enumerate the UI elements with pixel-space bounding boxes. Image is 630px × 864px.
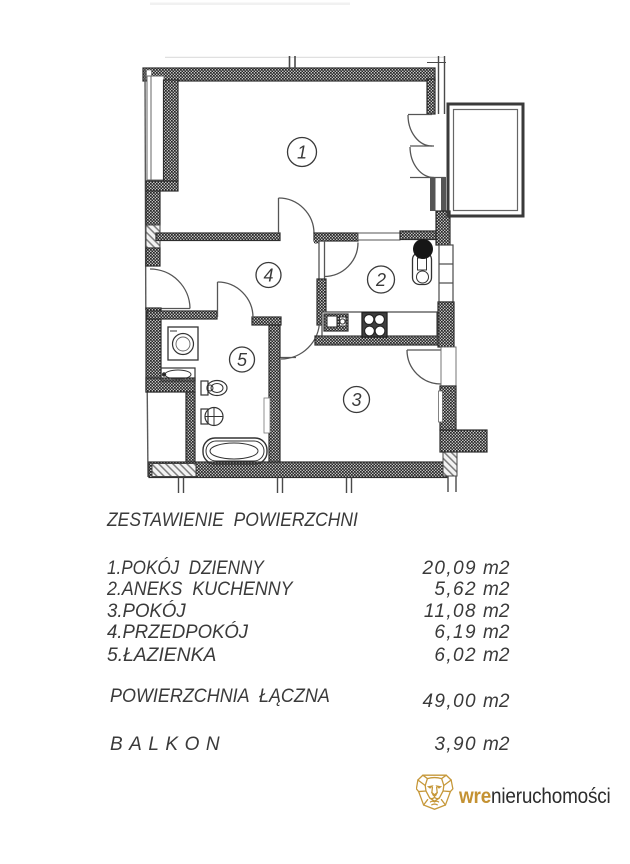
svg-text:3: 3 <box>351 390 361 410</box>
svg-text:1: 1 <box>297 143 307 163</box>
svg-text:4: 4 <box>263 266 273 286</box>
svg-text:2: 2 <box>375 270 386 290</box>
svg-text:5: 5 <box>237 350 248 370</box>
